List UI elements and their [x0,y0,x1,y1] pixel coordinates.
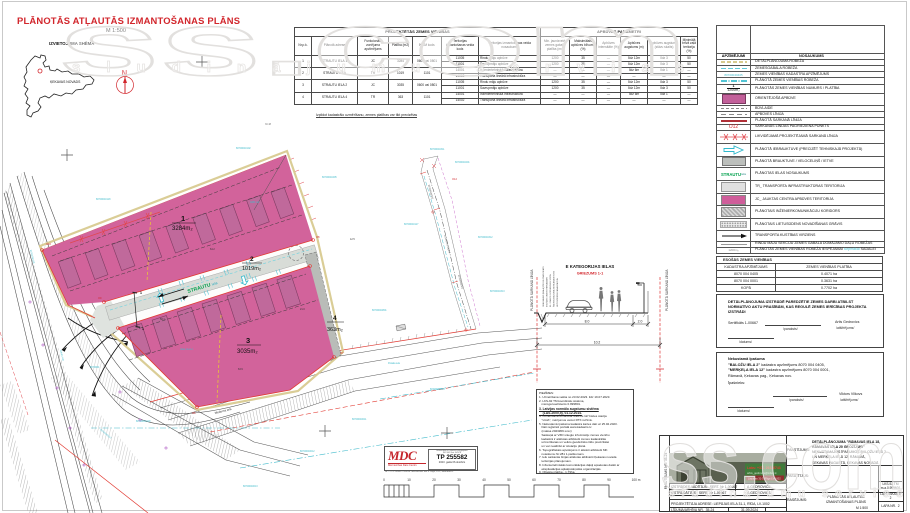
svg-text:Labs: +371 26326743: Labs: +371 26326743 [747,466,781,470]
svg-text:70: 70 [557,478,561,482]
svg-text:100 m: 100 m [632,478,641,482]
svg-text:40: 40 [482,478,486,482]
svg-text:50: 50 [507,478,511,482]
svg-text:Liepājas 31-5, Rīga LV-1002: Liepājas 31-5, Rīga LV-1002 [748,476,781,480]
svg-text:30: 30 [457,478,461,482]
svg-text:10: 10 [407,478,411,482]
svg-text:80: 80 [582,478,586,482]
svg-text:arbis_gedrovics@inbox.lv: arbis_gedrovics@inbox.lv [747,471,777,475]
svg-text:20: 20 [432,478,436,482]
svg-text:60: 60 [532,478,536,482]
svg-text:N: N [122,69,128,78]
svg-text:0: 0 [383,478,385,482]
svg-text:90: 90 [607,478,611,482]
